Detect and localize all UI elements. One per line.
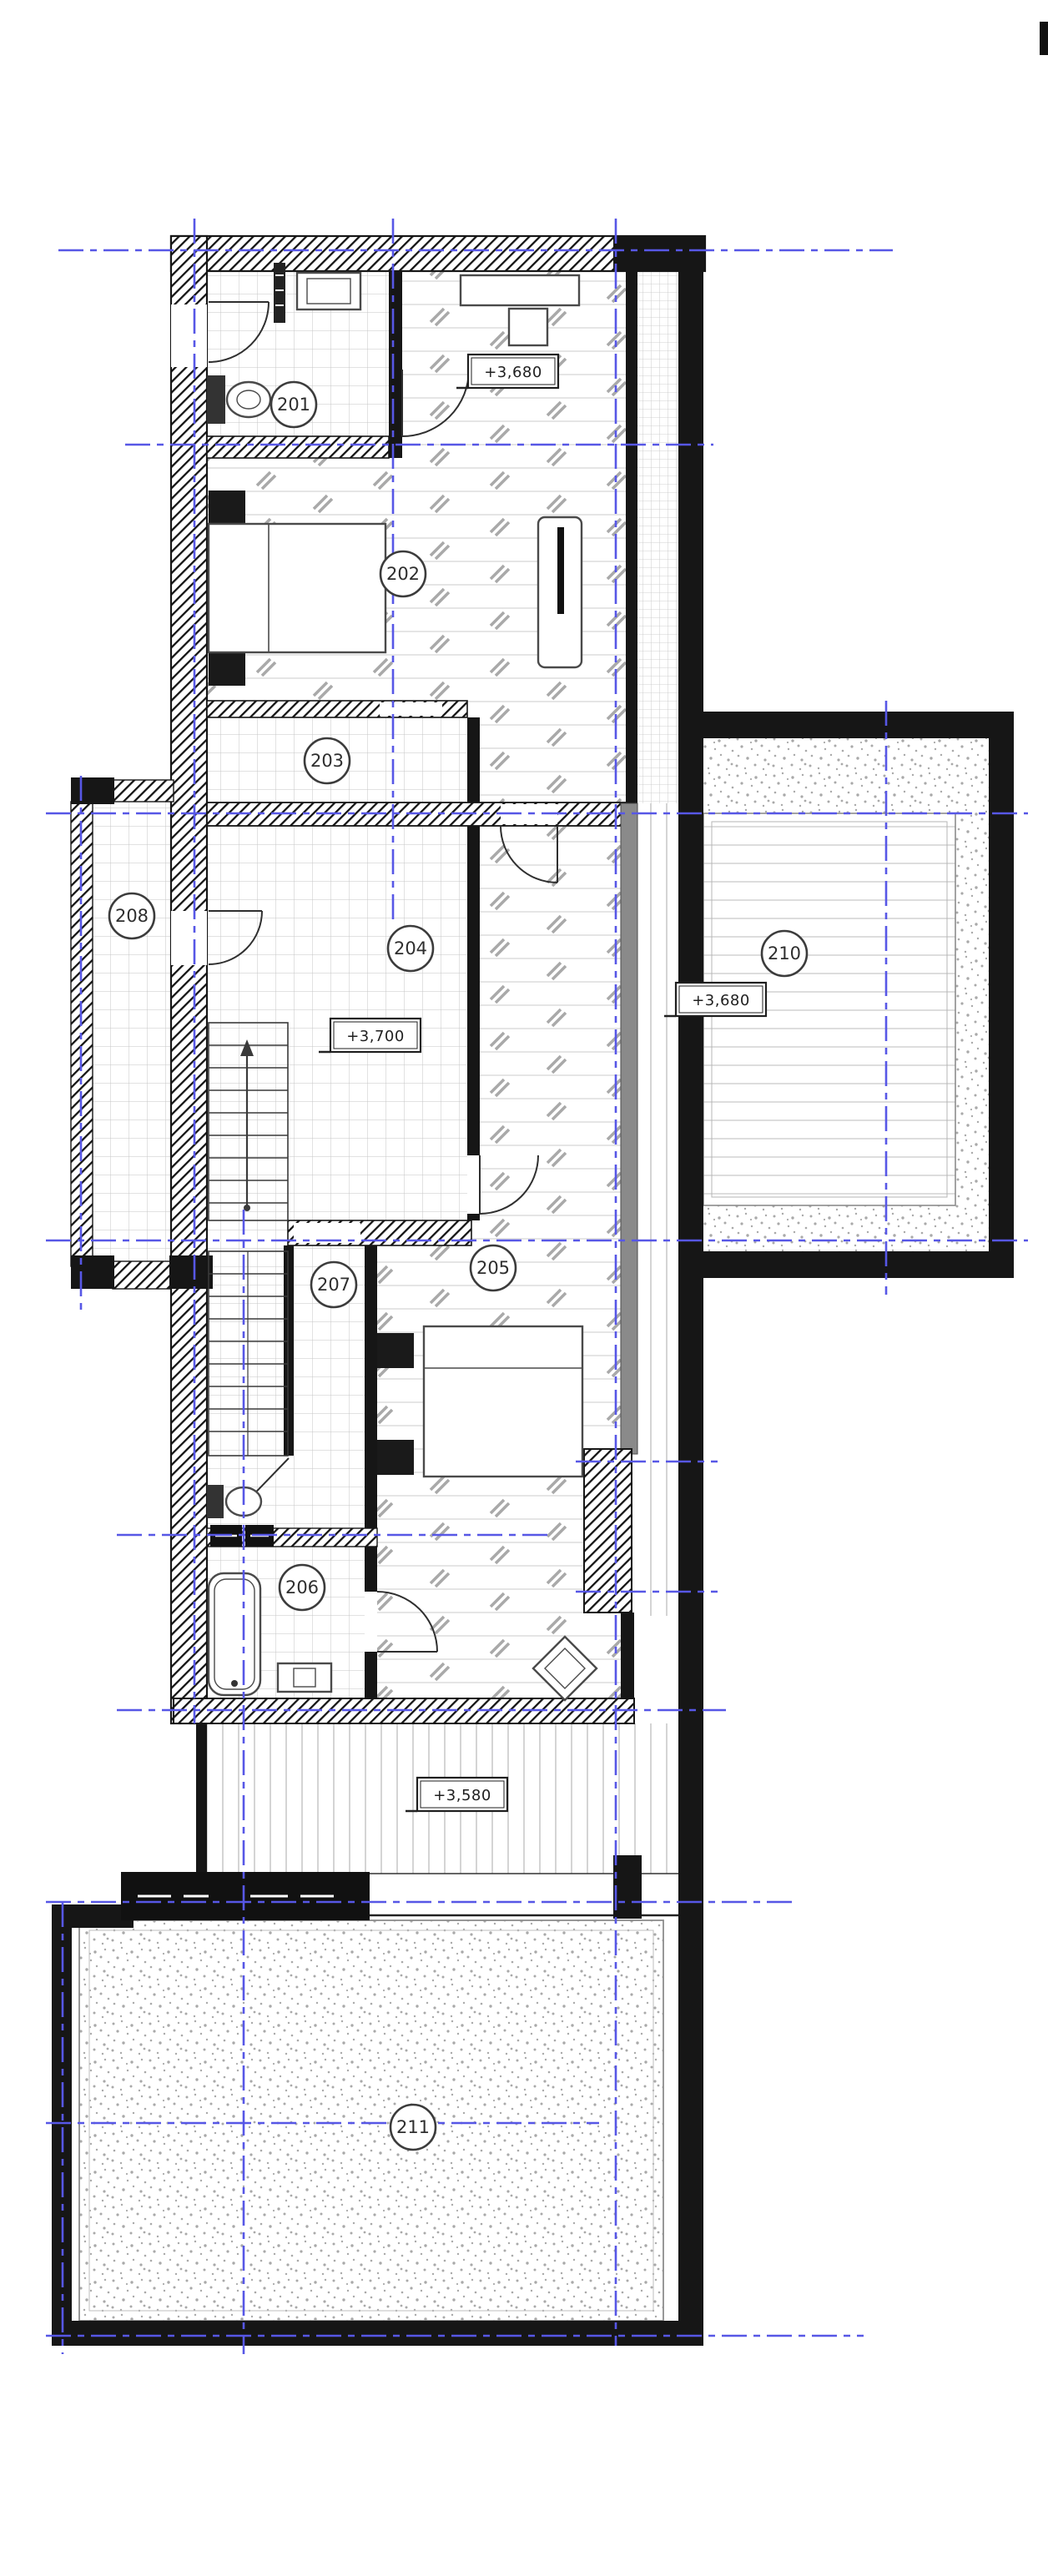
desk-202: [461, 275, 579, 305]
floor-205-mid: [471, 1220, 621, 1245]
opening-204-205: [467, 1155, 480, 1214]
nightstand-202-b: [209, 652, 245, 686]
floor-210-stipple-right: [955, 813, 989, 1205]
edge-artifact: [1040, 22, 1048, 55]
elevation-text: +3,680: [484, 364, 542, 381]
wall-strip-left: [196, 1723, 207, 1874]
sink-201-basin: [307, 279, 350, 304]
elevation-mark-3: +3,680: [664, 983, 766, 1016]
room-number-text: 201: [277, 395, 310, 415]
bathtub-206-drain: [231, 1680, 238, 1687]
room-number-text: 204: [394, 938, 427, 958]
room-number-text: 208: [115, 906, 149, 926]
room-number-text: 207: [317, 1275, 350, 1295]
washer-206-door: [294, 1668, 315, 1687]
elevation-mark-4: +3,580: [406, 1778, 507, 1811]
wall-202-strip: [626, 271, 637, 803]
elevation-text: +3,700: [346, 1028, 405, 1045]
wall-208-north: [113, 780, 174, 802]
floor-plan-page: 201202203204205206207208210211 +3,680+3,…: [0, 0, 1048, 2576]
room-number-badge-207: 207: [311, 1262, 356, 1307]
elevation-text: +3,580: [433, 1787, 491, 1804]
opening-206-205: [365, 1592, 377, 1652]
wall-208-corner-nw: [71, 777, 114, 804]
duct-201: [274, 263, 285, 323]
wall-208-south: [113, 1261, 171, 1289]
floor-210-stipple-bottom: [703, 1205, 989, 1251]
room-number-badge-210: 210: [762, 931, 807, 976]
bathtub-206-inner: [214, 1579, 254, 1689]
nightstand-205-b: [377, 1440, 414, 1475]
floor-east-strip-lower: [637, 803, 678, 1616]
wall-205-east-lower: [621, 1613, 634, 1698]
room-number-badge-202: 202: [380, 551, 426, 596]
room-number-text: 211: [396, 2117, 430, 2137]
wall-stairs-207: [284, 1245, 294, 1456]
wall-211-south: [52, 2321, 693, 2346]
wall-205-se-hatch: [584, 1449, 632, 1613]
wardrobe-202-handle: [557, 527, 564, 614]
floor-210-stipple-top: [703, 738, 989, 813]
room-number-badge-205: 205: [471, 1245, 516, 1291]
floor-plan-svg: 201202203204205206207208210211 +3,680+3,…: [0, 0, 1048, 2576]
stool-202: [509, 309, 547, 345]
floor-205-upper: [480, 826, 621, 1220]
wall-208-corner-se: [169, 1255, 213, 1289]
column-post: [613, 1855, 642, 1919]
floor-208: [93, 802, 171, 1261]
room-number-text: 206: [285, 1577, 319, 1597]
wall-210-right: [989, 712, 1014, 1278]
wall-201-bottom: [207, 436, 389, 458]
wall-208-corner-sw: [71, 1255, 114, 1289]
nightstand-205-a: [377, 1333, 414, 1368]
wall-west: [171, 236, 207, 1723]
opening-entry-201: [171, 304, 207, 367]
room-number-badge-208: 208: [109, 893, 154, 938]
wall-201-202: [389, 271, 402, 458]
bed-205: [424, 1326, 582, 1477]
toilet-201-cistern: [207, 375, 225, 424]
opening-204-208: [171, 911, 207, 965]
room-number-text: 205: [476, 1258, 510, 1278]
floor-east-strip-upper: [637, 271, 678, 803]
room-number-badge-204: 204: [388, 926, 433, 971]
room-number-text: 202: [386, 564, 420, 584]
room-number-badge-203: 203: [305, 738, 350, 783]
room-number-badge-206: 206: [280, 1565, 325, 1610]
nightstand-202-a: [209, 491, 245, 524]
toilet-nook-cistern: [207, 1485, 224, 1518]
wall-210-bottom: [703, 1251, 1014, 1278]
room-number-badge-201: 201: [271, 382, 316, 427]
floor-211: [79, 1920, 663, 2321]
room-number-text: 203: [310, 751, 344, 771]
wall-east: [678, 236, 703, 2346]
wall-210-top: [703, 712, 1014, 738]
room-number-badge-211: 211: [390, 2105, 436, 2150]
opening-202-203: [380, 702, 442, 716]
wall-203-east: [467, 717, 480, 802]
toilet-201-bowl-inner: [237, 390, 260, 409]
elevation-mark-1: +3,680: [456, 355, 558, 388]
wall-205-east: [621, 803, 637, 1454]
elevation-text: +3,680: [692, 992, 750, 1009]
room-number-text: 210: [768, 943, 801, 963]
elevation-mark-2: +3,700: [319, 1019, 421, 1052]
bed-202: [209, 524, 385, 652]
